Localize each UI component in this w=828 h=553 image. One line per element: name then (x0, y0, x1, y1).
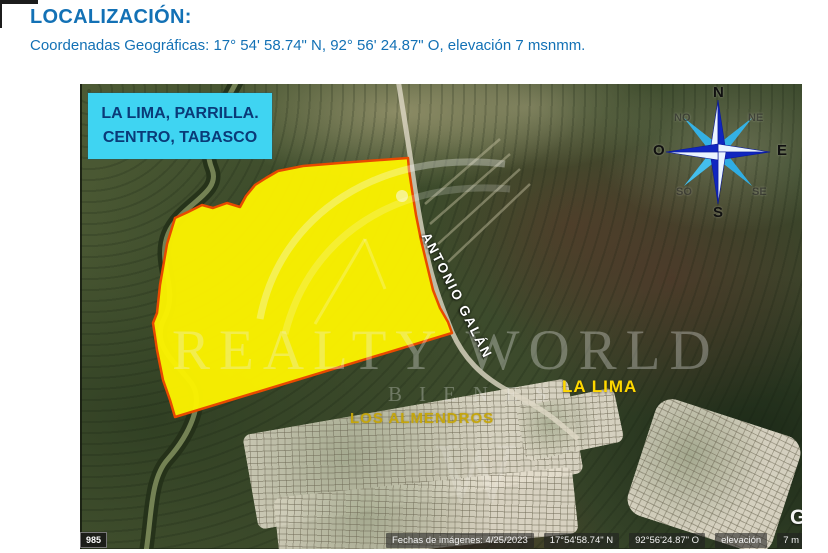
latitude-readout: 17°54'58.74" N (544, 533, 619, 548)
compass-e-label: E (777, 142, 787, 159)
elevation-value: 7 m (777, 533, 802, 548)
location-callout-box: LA LIMA, PARRILLA. CENTRO, TABASCO (88, 93, 272, 159)
compass-so-label: SO (676, 186, 692, 198)
compass-s-label: S (713, 204, 723, 221)
compass-n-label: N (713, 84, 724, 101)
dirt-trails (425, 139, 530, 262)
scan-artifact-bar (0, 0, 38, 4)
page-title: LOCALIZACIÓN: (30, 6, 192, 29)
town-label-la-lima: LA LIMA (562, 377, 637, 397)
compass-se-label: SE (752, 186, 767, 198)
watermark-ghost-letter: W (436, 424, 516, 522)
compass-ne-label: NE (748, 112, 763, 124)
callout-line1: LA LIMA, PARRILLA. (101, 102, 258, 126)
compass-o-label: O (653, 142, 665, 159)
bienes-watermark: BIENES (388, 382, 564, 407)
elevation-label: elevación (715, 533, 767, 548)
callout-line2: CENTRO, TABASCO (103, 126, 257, 150)
neighborhood-label-los-almendros: LOS ALMENDROS (350, 410, 494, 427)
map-status-bar: Fechas de imágenes: 4/25/2023 17°54'58.7… (386, 532, 802, 549)
timeline-year-badge: 985 (80, 532, 107, 548)
realty-world-watermark: REALTY WORLD (172, 318, 720, 383)
coordinates-subtitle: Coordenadas Geográficas: 17° 54' 58.74" … (30, 37, 585, 54)
google-logo-partial: G (790, 506, 802, 530)
longitude-readout: 92°56'24.87" O (629, 533, 705, 548)
scan-artifact-line (0, 0, 2, 28)
imagery-date: Fechas de imágenes: 4/25/2023 (386, 533, 534, 548)
compass-no-label: NO (674, 112, 691, 124)
satellite-map: REALTY WORLD BIENES W LA LIMA, PARRILLA.… (80, 84, 802, 549)
